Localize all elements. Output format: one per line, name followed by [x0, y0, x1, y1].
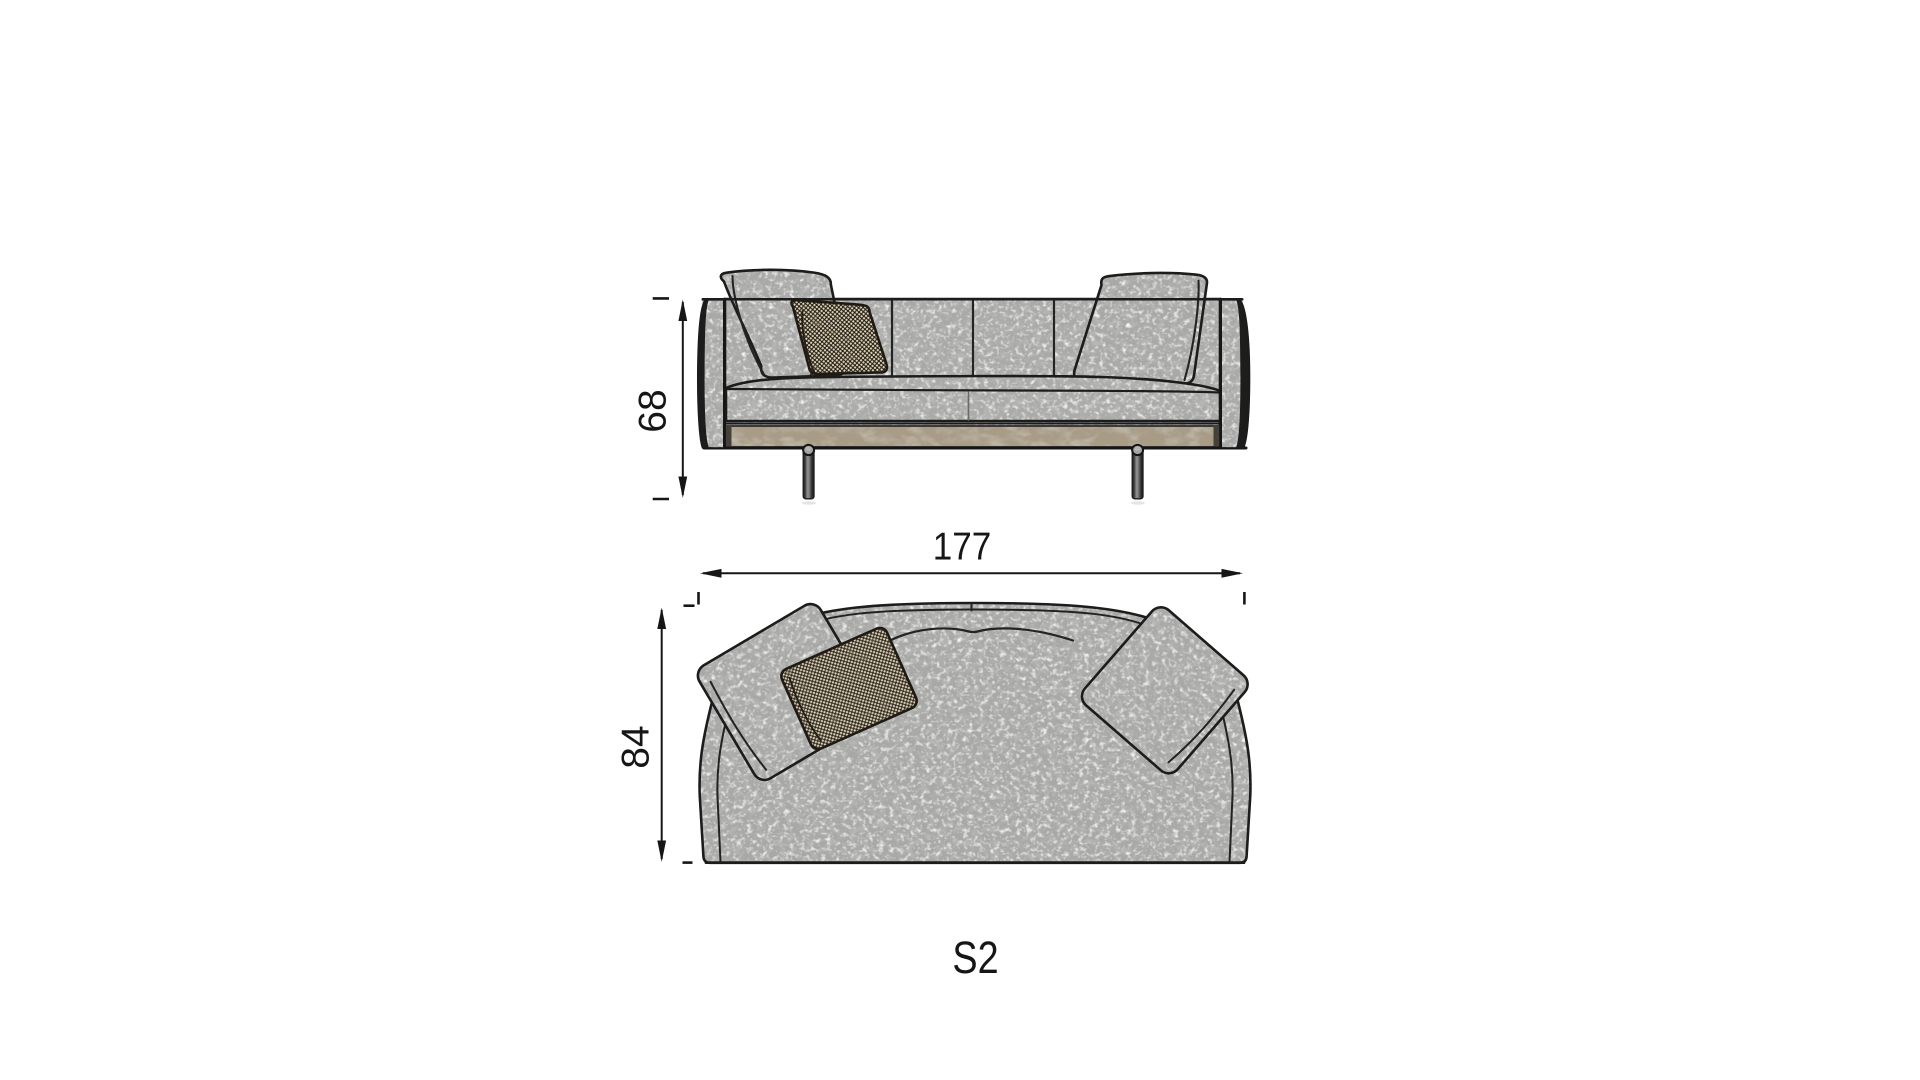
svg-text:177: 177: [933, 524, 992, 568]
svg-text:84: 84: [615, 725, 658, 768]
svg-text:68: 68: [632, 389, 675, 432]
svg-text:S2: S2: [952, 932, 998, 983]
